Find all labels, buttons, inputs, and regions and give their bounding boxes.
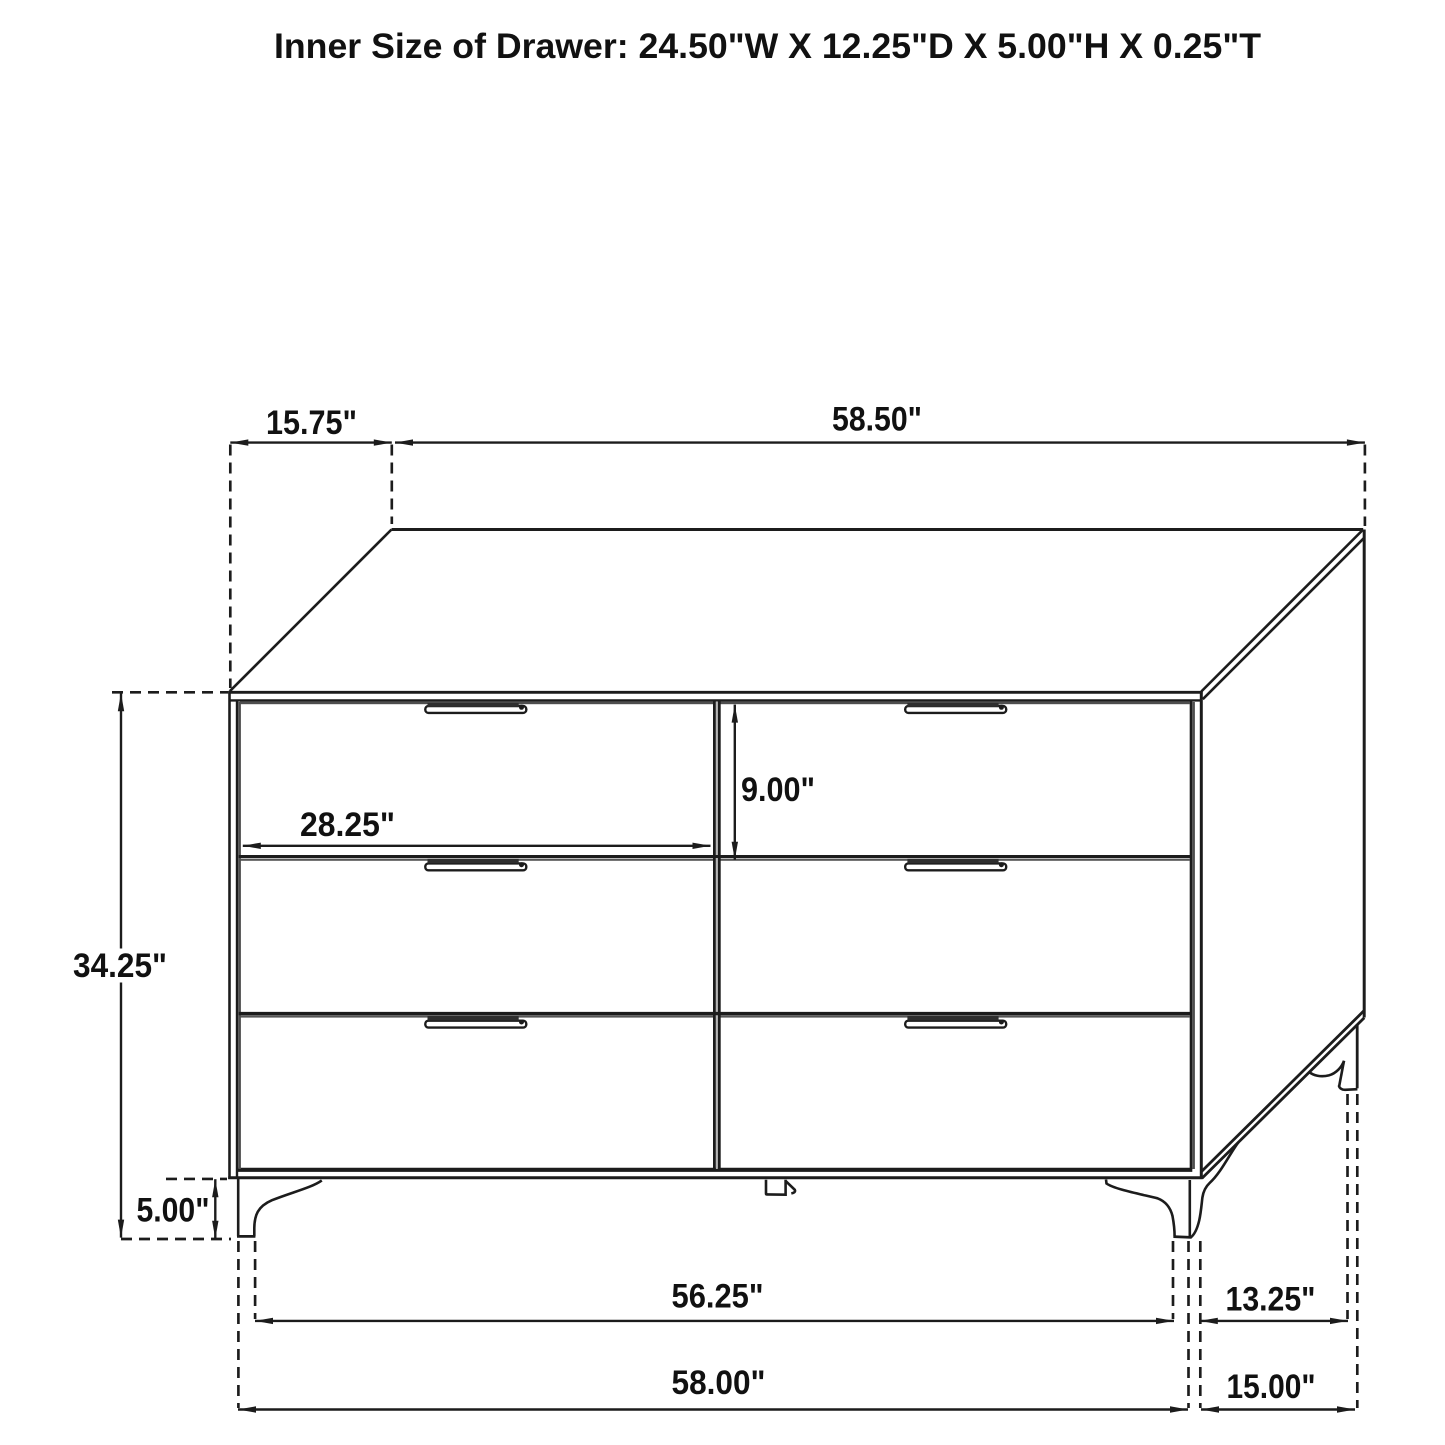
svg-text:Inner Size of Drawer: 24.50"W: Inner Size of Drawer: 24.50"W X 12.25"D … xyxy=(274,27,1261,66)
svg-text:56.25": 56.25" xyxy=(672,1278,764,1316)
svg-text:28.25": 28.25" xyxy=(300,806,395,844)
svg-text:13.25": 13.25" xyxy=(1226,1281,1316,1319)
svg-text:58.00": 58.00" xyxy=(672,1364,766,1402)
svg-text:58.50": 58.50" xyxy=(832,401,922,439)
svg-text:34.25": 34.25" xyxy=(73,947,167,985)
svg-text:15.75": 15.75" xyxy=(266,404,357,442)
svg-text:15.00": 15.00" xyxy=(1227,1368,1316,1406)
svg-text:5.00": 5.00" xyxy=(137,1192,210,1230)
svg-text:9.00": 9.00" xyxy=(741,771,815,809)
